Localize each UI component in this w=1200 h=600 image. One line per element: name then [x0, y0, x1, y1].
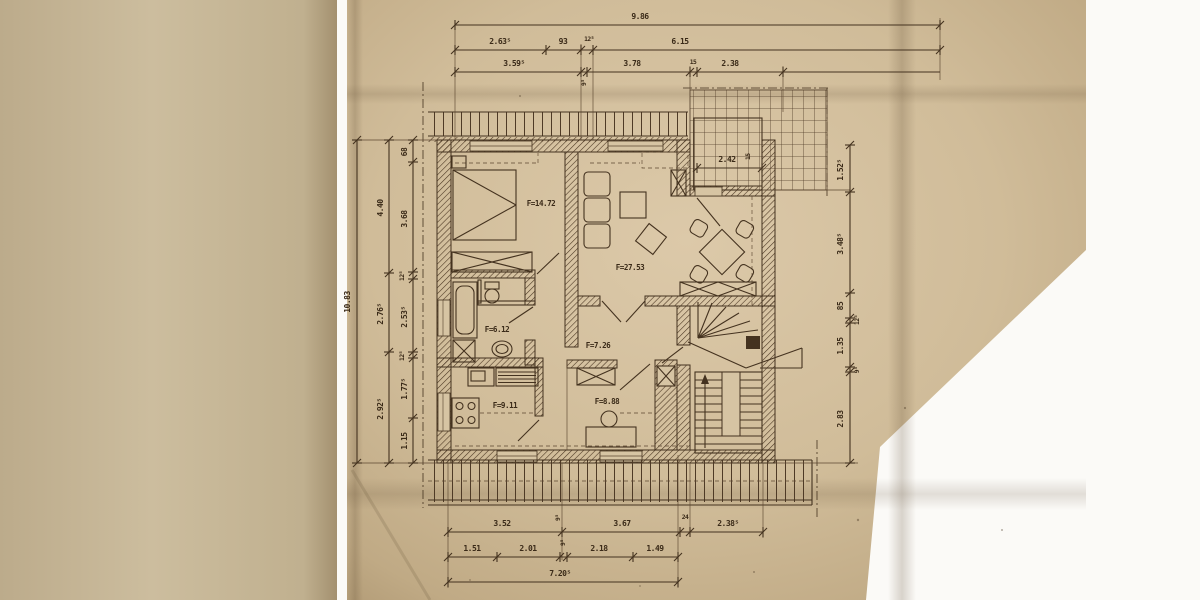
dim-leftmid-1: 4.40: [376, 199, 385, 217]
dim-top2-4: 6.15: [671, 37, 689, 46]
dim-top-total: 9.86: [631, 12, 649, 21]
study-area-label: F=8.88: [595, 397, 620, 406]
dim-bot1-1: 3.52: [493, 519, 511, 528]
railing-bottom: [428, 460, 812, 505]
dim-leftin-7: 1.15: [400, 432, 409, 450]
dim-bot1-4: 24: [682, 514, 689, 521]
dim-right-7: 2.83: [836, 410, 845, 428]
dim-leftin-4: 2.53⁵: [400, 306, 409, 328]
dim-left-total: 10.83: [343, 291, 352, 313]
dim-right-3: 85: [836, 301, 845, 310]
balcony-door-opening: [695, 187, 722, 196]
dim-right-5: 1.35: [836, 337, 845, 355]
dim-balcony-side: 15: [745, 153, 752, 160]
folded-page-edge: [0, 0, 337, 600]
closet-box: [657, 366, 675, 386]
bedroom-area-label: F=14.72: [527, 199, 556, 208]
dim-right-2: 3.48⁵: [836, 233, 845, 255]
dim-bot1-3: 3.67: [613, 519, 631, 528]
dim-top2-1: 2.63⁵: [489, 37, 511, 46]
dim-leftin-1: 68: [400, 147, 409, 156]
floorplan-drawing: 2.42 15: [0, 0, 1200, 600]
dim-top2-2: 93: [559, 37, 568, 46]
hall-area-label: F=7.26: [586, 341, 611, 350]
dim-bot1-2: 9⁵: [555, 514, 562, 521]
dim-bot2-4: 2.18: [590, 544, 608, 553]
dim-bot2-1: 1.51: [463, 544, 481, 553]
dim-top3-5: 2.38: [721, 59, 739, 68]
dim-right-1: 1.52⁵: [836, 159, 845, 181]
dim-top3-2: 9⁵: [581, 79, 588, 86]
dim-right-4: 12⁵: [854, 315, 861, 325]
dim-bot2-5: 1.49: [646, 544, 664, 553]
balcony-area: 2.42 15: [690, 90, 827, 190]
dim-bot3-1: 7.20⁵: [549, 569, 571, 578]
room-hall: F=7.26: [586, 341, 611, 350]
kitchen-area-label: F=9.11: [493, 401, 518, 410]
dim-bot2-2: 2.01: [519, 544, 537, 553]
railing-top: [428, 112, 688, 142]
dim-bot1-5: 2.38⁵: [717, 519, 739, 528]
dim-top3-1: 3.59⁵: [503, 59, 525, 68]
dim-leftmid-2: 2.76⁵: [376, 303, 385, 325]
dim-top3-3: 3.78: [623, 59, 641, 68]
chimney-block: [746, 336, 760, 349]
stair-well: [722, 372, 740, 436]
dim-top3-4: 15: [690, 59, 697, 66]
dim-leftin-6: 1.77⁵: [400, 378, 409, 400]
dim-balcony: 2.42: [718, 155, 736, 164]
scanned-floorplan-photo: 2.42 15: [0, 0, 1200, 600]
dim-leftin-3: 12⁵: [399, 271, 406, 281]
dim-leftmid-3: 2.92⁵: [376, 398, 385, 420]
dim-leftin-5: 12⁵: [399, 351, 406, 361]
bath-area-label: F=6.12: [485, 325, 509, 334]
dim-leftin-2: 3.68: [400, 210, 409, 228]
dim-right-6: 9⁵: [854, 367, 861, 374]
balcony-stub-right: [762, 140, 775, 196]
paper-background: [0, 0, 1086, 600]
dim-bot2-3: 9⁵: [560, 539, 567, 546]
dim-top2-3: 12⁵: [584, 36, 594, 43]
pergola-grid: [690, 90, 827, 190]
living-area-label: F=27.53: [616, 263, 645, 272]
